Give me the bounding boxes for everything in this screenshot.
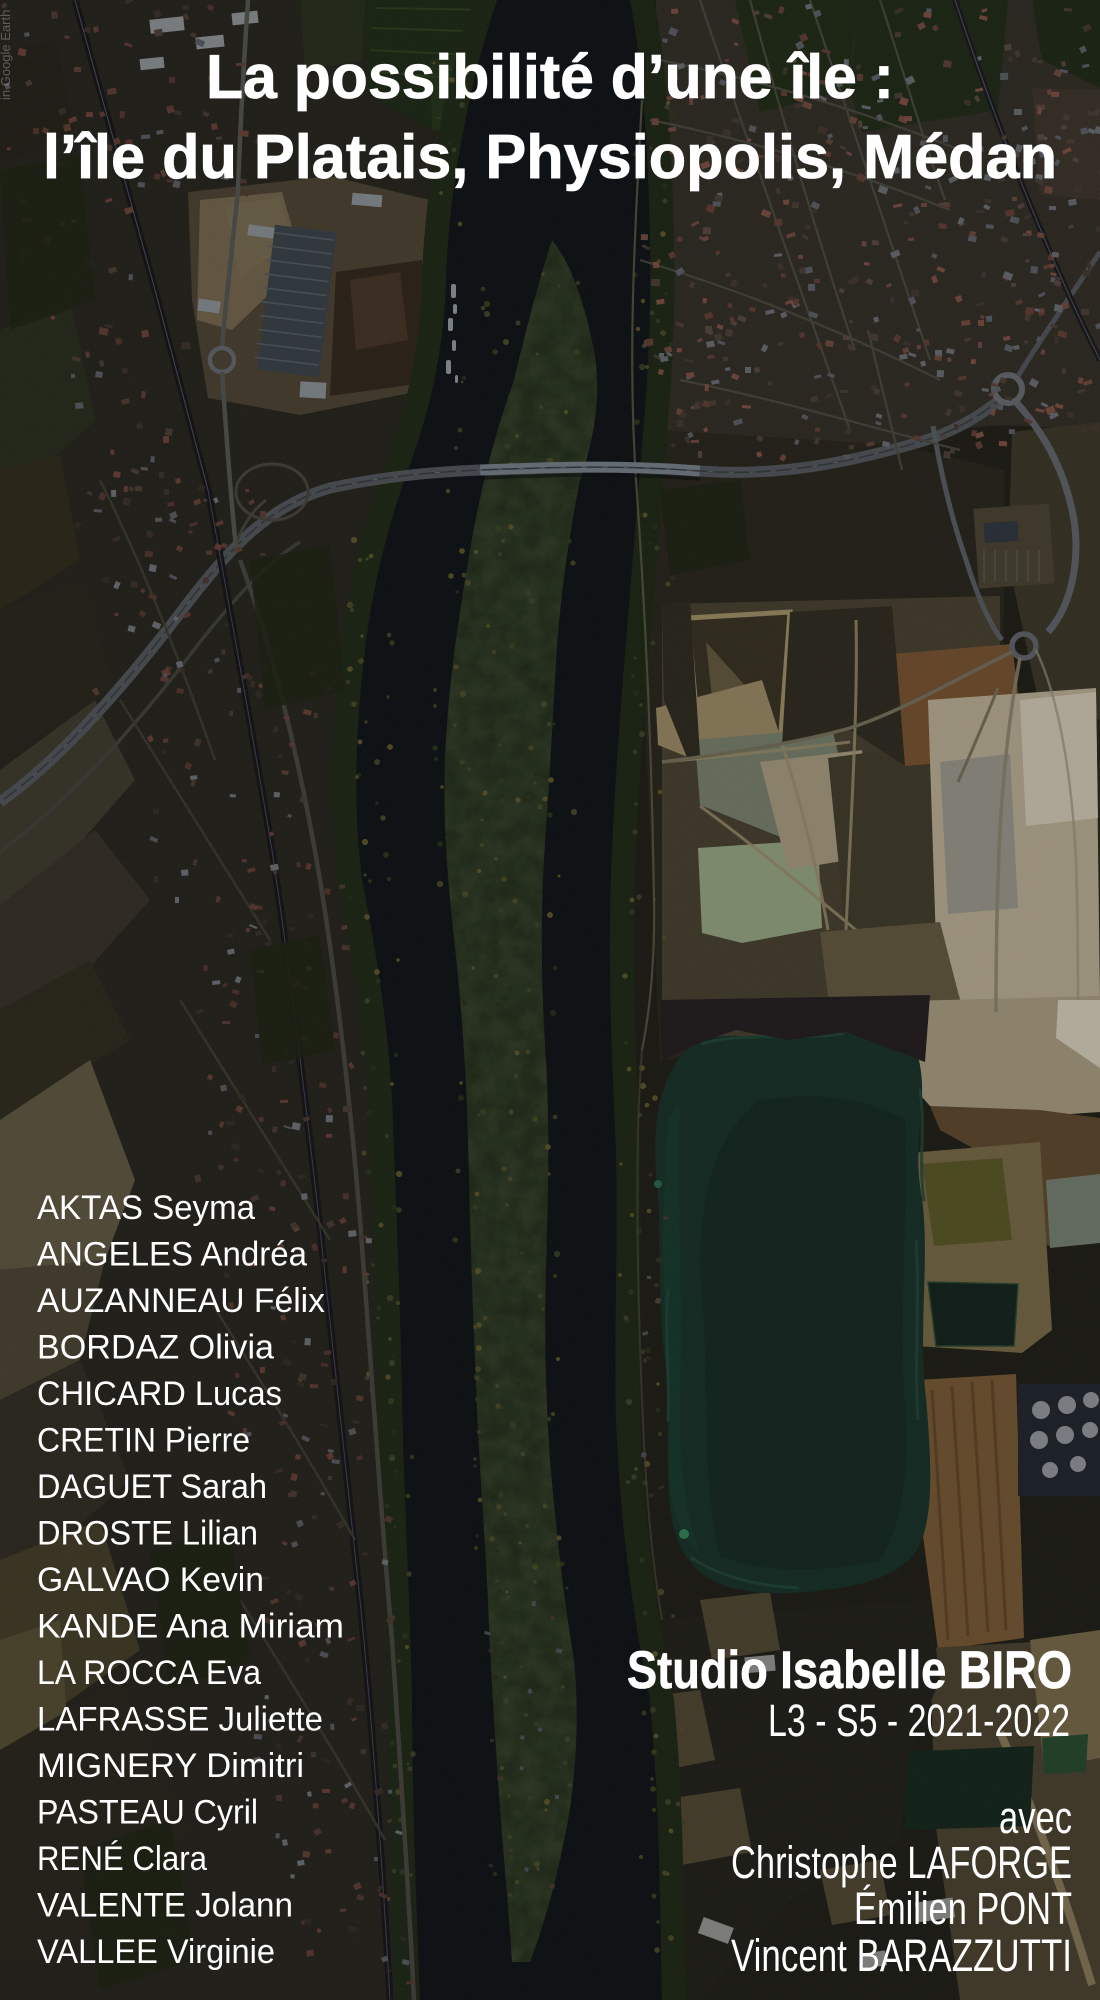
svg-text:AKTAS Seyma: AKTAS Seyma	[37, 1189, 255, 1227]
svg-text:GALVAO Kevin: GALVAO Kevin	[37, 1561, 264, 1599]
svg-text:avec: avec	[999, 1792, 1072, 1843]
svg-text:KANDE Ana Miriam: KANDE Ana Miriam	[37, 1608, 344, 1646]
svg-text:LAFRASSE Juliette: LAFRASSE Juliette	[37, 1701, 323, 1739]
svg-text:DROSTE Lilian: DROSTE Lilian	[37, 1515, 258, 1553]
svg-text:l’île du Platais, Physiopolis,: l’île du Platais, Physiopolis, Médan	[43, 123, 1057, 192]
svg-text:PASTEAU Cyril: PASTEAU Cyril	[37, 1794, 258, 1832]
svg-text:Studio Isabelle BIRO: Studio Isabelle BIRO	[627, 1641, 1072, 1700]
svg-text:Vincent BARAZZUTTI: Vincent BARAZZUTTI	[731, 1930, 1072, 1981]
svg-text:RENÉ Clara: RENÉ Clara	[37, 1840, 207, 1878]
svg-text:AUZANNEAU Félix: AUZANNEAU Félix	[37, 1282, 325, 1320]
svg-text:VALLEE Virginie: VALLEE Virginie	[37, 1933, 275, 1971]
svg-text:BORDAZ Olivia: BORDAZ Olivia	[37, 1329, 274, 1367]
svg-text:VALENTE Jolann: VALENTE Jolann	[37, 1887, 293, 1925]
svg-text:Émilien PONT: Émilien PONT	[854, 1883, 1072, 1934]
svg-text:CRETIN Pierre: CRETIN Pierre	[37, 1422, 250, 1460]
svg-text:La possibilité d’une île :: La possibilité d’une île :	[206, 43, 894, 112]
svg-text:L3 - S5 - 2021-2022: L3 - S5 - 2021-2022	[768, 1695, 1070, 1746]
svg-text:ANGELES Andréa: ANGELES Andréa	[37, 1236, 307, 1274]
svg-text:DAGUET Sarah: DAGUET Sarah	[37, 1468, 267, 1506]
svg-text:CHICARD Lucas: CHICARD Lucas	[37, 1375, 282, 1413]
svg-text:in Google Earth: in Google Earth	[0, 10, 13, 100]
svg-text:MIGNERY Dimitri: MIGNERY Dimitri	[37, 1747, 304, 1785]
svg-text:LA ROCCA Eva: LA ROCCA Eva	[37, 1654, 261, 1692]
svg-text:Christophe LAFORGE: Christophe LAFORGE	[731, 1837, 1072, 1888]
